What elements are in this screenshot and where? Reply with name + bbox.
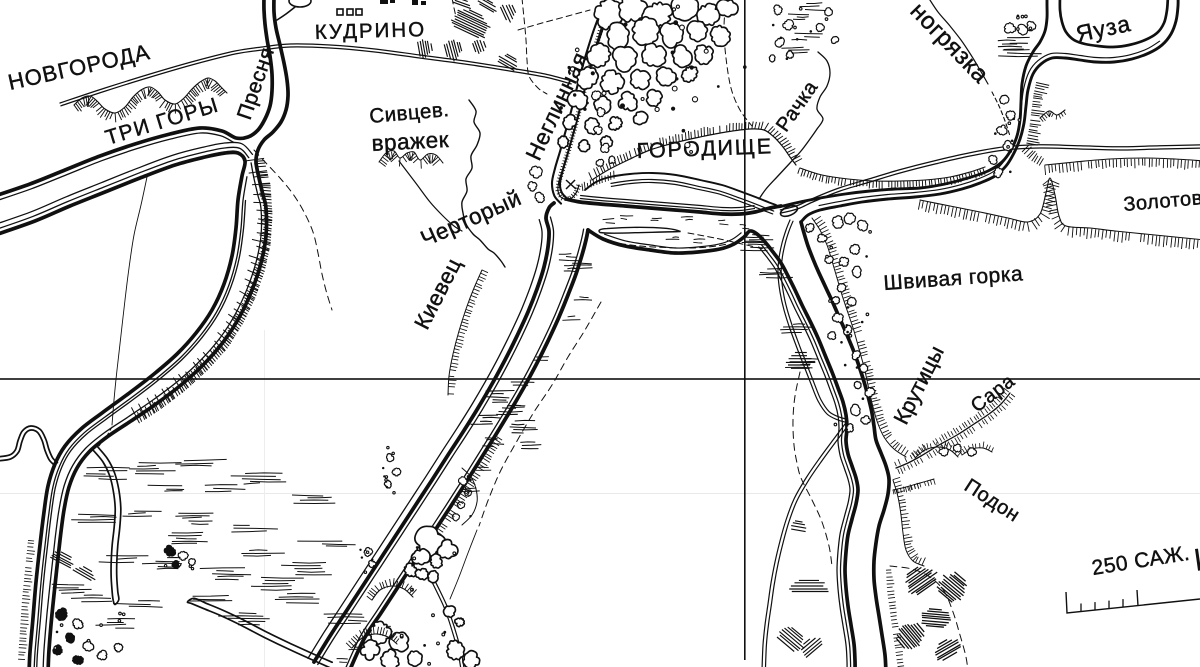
svg-text:КУДРИНО: КУДРИНО [315, 18, 427, 44]
svg-text:ГОРОДИЩЕ: ГОРОДИЩЕ [636, 134, 773, 163]
svg-text:вражек: вражек [371, 127, 450, 156]
